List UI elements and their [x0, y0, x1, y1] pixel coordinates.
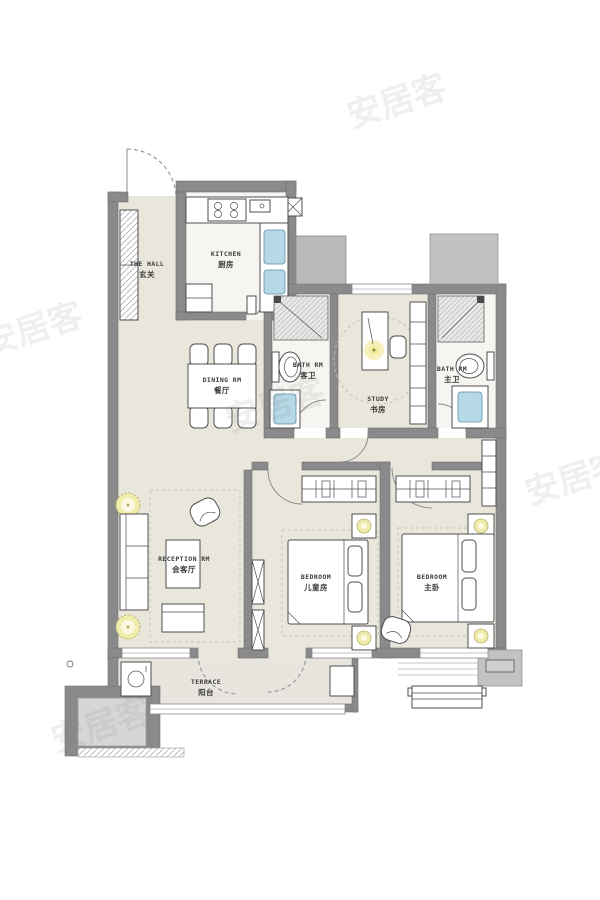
nightstand-icon [468, 624, 494, 648]
label-reception-en: RECEPTION RM [158, 555, 210, 563]
sink-master-icon [452, 386, 488, 428]
plant-icon [116, 493, 140, 517]
label-bath-guest-en: BATH RM [293, 361, 323, 369]
coffee-table [166, 540, 200, 588]
label-hall-zh: 玄关 [139, 269, 155, 279]
watermark-text: 安居客 [520, 444, 600, 514]
label-dining-zh: 餐厅 [213, 385, 230, 395]
shower-master-icon [438, 296, 484, 342]
label-kitchen-en: KITCHEN [211, 250, 241, 258]
watermark-text: 安居客 [0, 295, 88, 365]
window-bedroom-master [420, 648, 488, 658]
duct-shaft [296, 236, 346, 284]
label-terrace-zh: 阳台 [198, 687, 214, 697]
terrace-step [330, 666, 354, 696]
bed-master-icon [402, 534, 494, 622]
dining-chair [238, 344, 256, 366]
window-reception [122, 648, 190, 658]
label-bath-master-zh: 主卫 [444, 374, 460, 384]
label-hall-en: THE HALL [130, 260, 165, 268]
dining-chair [190, 344, 208, 366]
nightstand-icon [352, 514, 376, 538]
plant-icon [116, 615, 140, 639]
label-bedroom-kids-en: BEDROOM [301, 573, 331, 581]
study-chair [390, 336, 406, 358]
watermark-text: 安居客 [342, 67, 451, 137]
shower-guest-icon [274, 296, 328, 340]
label-bedroom-kids-zh: 儿童房 [303, 582, 328, 592]
label-study-zh: 书房 [370, 404, 386, 414]
ac-platform-bottom-right [398, 650, 522, 708]
label-terrace-en: TERRACE [191, 678, 221, 686]
dining-chair [190, 406, 208, 428]
kitchen-faucet-icon [250, 200, 270, 212]
nightstand-icon [352, 626, 376, 650]
tv-bench-icon [162, 604, 204, 632]
ac-unit-icon [408, 686, 486, 708]
ac-platform-top [430, 234, 498, 284]
floor-plan-page: THE HALL 玄关 KITCHEN 厨房 [0, 0, 600, 900]
fridge-icon [186, 284, 212, 312]
cabinet-master-right-icon [482, 440, 496, 506]
label-kitchen-zh: 厨房 [218, 259, 234, 269]
floor-plan-canvas: THE HALL 玄关 KITCHEN 厨房 [0, 0, 600, 900]
label-bedroom-master-en: BEDROOM [417, 573, 447, 581]
label-dining-en: DINING RM [203, 376, 242, 384]
washing-machine-icon [121, 662, 151, 696]
window-study [352, 284, 412, 294]
entry-door [127, 149, 176, 197]
window-terrace [150, 704, 345, 714]
wardrobe-master-icon [396, 476, 470, 502]
wardrobe-kids-icon [302, 476, 376, 502]
label-study-en: STUDY [367, 395, 389, 403]
study-bookshelf-icon [410, 302, 426, 424]
label-reception-zh: 会客厅 [172, 564, 196, 574]
stove-icon [208, 199, 246, 221]
dining-chair [214, 344, 232, 366]
sofa-icon [120, 514, 148, 610]
label-bath-master-en: BATH RM [437, 365, 467, 373]
label-bedroom-master-zh: 主卧 [424, 582, 440, 592]
bed-kids-icon [288, 540, 368, 624]
